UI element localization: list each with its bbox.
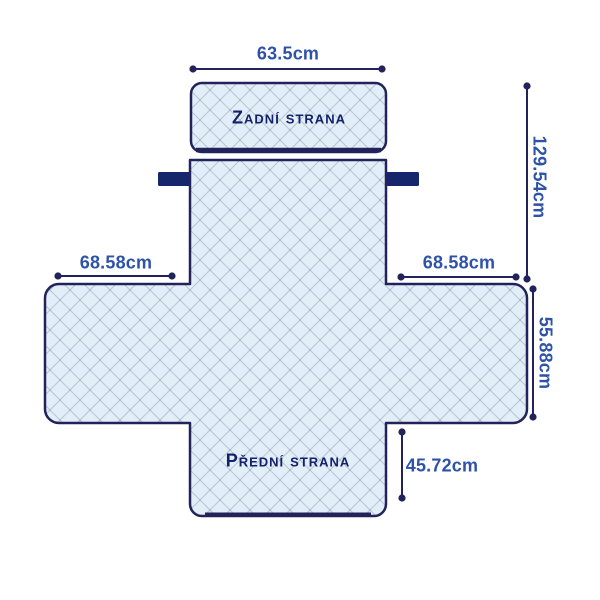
dim-front-height: [398, 428, 405, 501]
dim-total-height: [523, 82, 530, 282]
right-strap: [386, 172, 419, 186]
dim-top-width: [189, 65, 385, 72]
back-flap: [191, 83, 386, 152]
dim-arm-height: [529, 285, 536, 420]
cover-body: [45, 160, 527, 516]
cover-diagram-svg: [0, 0, 600, 600]
dim-right-arm-width: [397, 273, 519, 280]
sofa-cover-diagram: 63.5cm 129.54cm 68.58cm 68.58cm 55.88cm …: [0, 0, 600, 600]
dim-left-arm-width: [54, 272, 175, 279]
left-strap: [158, 172, 191, 186]
